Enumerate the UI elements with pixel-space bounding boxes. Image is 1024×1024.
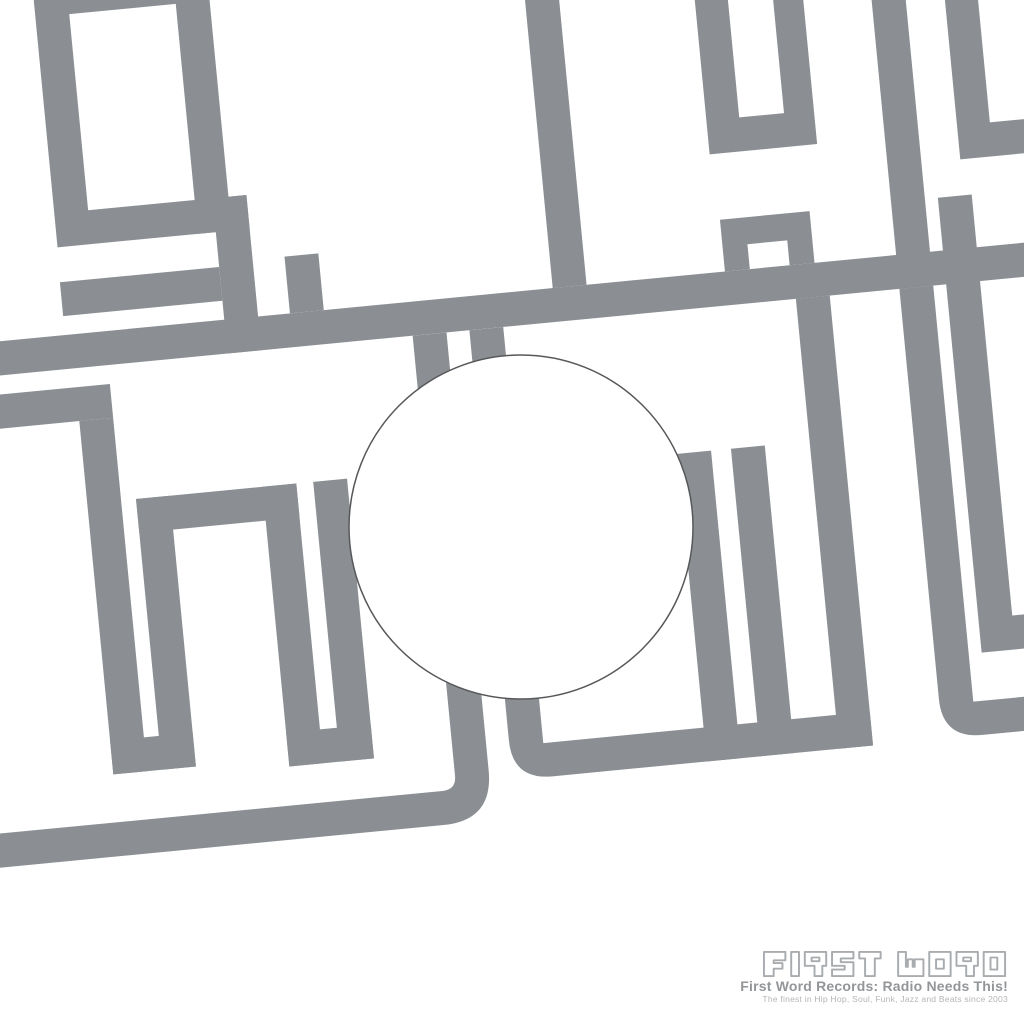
logo-letter-d bbox=[984, 952, 1005, 976]
logo-glyphs bbox=[764, 952, 1005, 976]
maze-fragment-w-prong1 bbox=[79, 418, 147, 775]
maze-fragment-o-stroke2 bbox=[731, 445, 794, 756]
maze-fragment-bump bbox=[720, 211, 815, 271]
maze-fragment-plus-stem bbox=[862, 0, 933, 289]
logo-letter-i bbox=[791, 952, 799, 976]
logo-letter-r bbox=[805, 952, 826, 976]
maze-fragment-o-stroke3 bbox=[796, 296, 873, 749]
logo-letter-f bbox=[764, 952, 785, 976]
label-logo-block: First Word Records: Radio Needs This! Th… bbox=[740, 951, 1008, 1004]
maze-fragment-w-prong3 bbox=[262, 484, 323, 767]
sleeve-artwork bbox=[0, 0, 1024, 1024]
center-hole bbox=[349, 355, 693, 699]
maze-fragment-s-midbar bbox=[60, 267, 223, 316]
maze-fragment-u-hanging bbox=[687, 0, 817, 154]
record-sleeve: First Word Records: Radio Needs This! Th… bbox=[0, 0, 1024, 1024]
subtagline: The finest in Hip Hop, Soul, Funk, Jazz … bbox=[740, 995, 1008, 1004]
tagline: First Word Records: Radio Needs This! bbox=[740, 980, 1008, 993]
maze-fragment-d-bend bbox=[935, 0, 1024, 159]
logo-letter-w bbox=[898, 952, 923, 976]
maze-fragment-w-prong2 bbox=[136, 496, 196, 770]
logo-letter-r bbox=[956, 952, 977, 976]
maze-fragment-left-stroke bbox=[519, 0, 587, 288]
first-word-logotype bbox=[763, 951, 1008, 977]
maze-fragment-stub bbox=[284, 253, 323, 313]
logo-letter-o bbox=[929, 952, 950, 976]
logo-letter-s bbox=[832, 952, 853, 976]
logo-letter-t bbox=[859, 952, 880, 976]
